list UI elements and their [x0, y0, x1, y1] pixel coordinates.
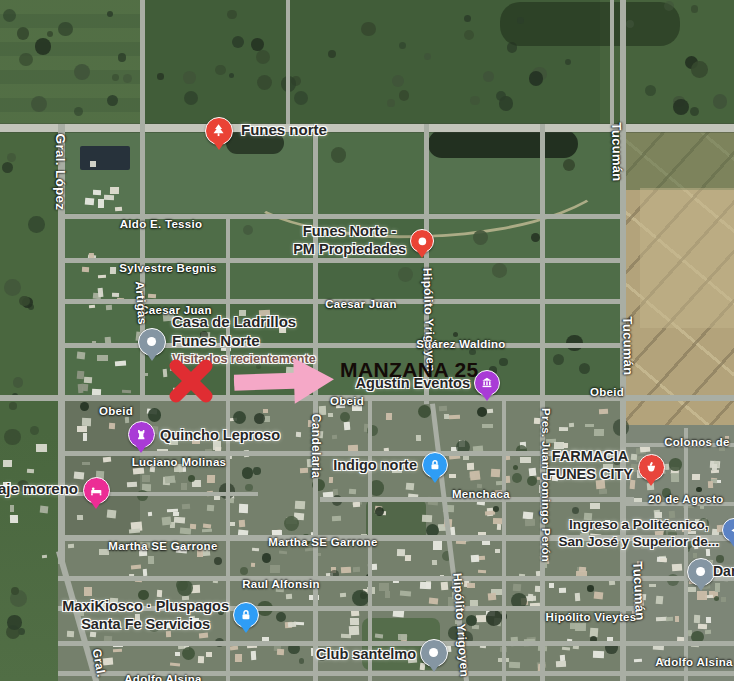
house	[90, 161, 96, 167]
house	[279, 550, 288, 554]
street-label: Martha SE Garrone	[268, 536, 377, 548]
house	[202, 529, 212, 533]
quincho-leproso-pin[interactable]	[128, 421, 155, 448]
club-santelmo-label[interactable]: Club santelmo	[316, 645, 416, 663]
house	[332, 516, 342, 522]
house	[353, 567, 360, 573]
street-label: Tucumán	[609, 122, 625, 181]
house	[708, 481, 714, 488]
house	[84, 587, 92, 596]
street-label: Menchaca	[452, 488, 510, 500]
tree-icon	[211, 123, 226, 138]
house	[277, 649, 284, 655]
tree	[112, 74, 119, 81]
house	[107, 510, 117, 519]
house	[656, 596, 663, 604]
house	[207, 505, 215, 512]
tree	[507, 42, 517, 52]
house	[438, 405, 446, 411]
tree	[9, 402, 17, 410]
house	[76, 352, 85, 360]
house	[328, 413, 333, 417]
padlock-icon	[239, 608, 253, 622]
tree	[517, 17, 524, 24]
house	[590, 503, 600, 509]
tree	[2, 162, 13, 173]
house	[199, 632, 208, 637]
road	[502, 398, 506, 681]
house	[125, 417, 129, 424]
pin-tail	[646, 479, 656, 486]
tree	[177, 580, 193, 596]
casa-de-ladrillos-pin[interactable]	[138, 328, 166, 356]
map-canvas[interactable]: Gral. LópezAldo E. TessioSylvestre Begni…	[0, 0, 734, 681]
tree	[716, 555, 723, 562]
house	[375, 634, 383, 639]
house	[593, 591, 603, 599]
indigo-norte-pin[interactable]	[422, 452, 448, 478]
tree	[360, 592, 367, 599]
indigo-norte-label[interactable]: Indigo norte	[333, 456, 417, 474]
tree	[19, 53, 33, 67]
house	[164, 476, 175, 484]
tree	[713, 94, 728, 109]
house	[93, 190, 101, 196]
tree	[35, 38, 52, 55]
tree	[251, 38, 264, 51]
house	[295, 500, 305, 509]
house	[349, 489, 357, 495]
pin-tail	[429, 665, 439, 672]
funes-norte-pm-propiedades-pin[interactable]	[410, 229, 434, 253]
funes-norte-pm-propiedades-label[interactable]: Funes Norte -PM Propiedades	[293, 222, 406, 258]
farmacia-funes-city-pin[interactable]	[638, 454, 665, 481]
house	[98, 287, 104, 296]
pin-tail	[696, 584, 706, 591]
house	[559, 427, 568, 432]
house	[649, 584, 656, 587]
house	[36, 444, 47, 452]
poi-label-line: Funes Norte -	[293, 222, 406, 240]
house	[288, 622, 297, 628]
house	[522, 511, 533, 518]
ingreso-politecnico-label[interactable]: Ingreso a Politécnico,San José y Superio…	[558, 517, 719, 550]
house	[148, 512, 153, 516]
pin-tail	[136, 446, 146, 453]
pin-tail	[430, 476, 440, 483]
house	[406, 483, 415, 490]
house	[556, 661, 566, 668]
tree	[513, 465, 518, 470]
house	[115, 360, 126, 366]
house	[693, 615, 699, 623]
house	[73, 471, 84, 479]
dot-icon	[693, 564, 708, 579]
poi-label-line: Indigo norte	[333, 456, 417, 474]
tree	[690, 107, 699, 116]
tree	[215, 65, 225, 75]
funes-norte-park-label[interactable]: Funes norte	[241, 121, 327, 140]
house	[491, 469, 500, 478]
tree	[563, 159, 575, 171]
tree	[232, 36, 244, 48]
street-label: Suárez Waldino	[416, 338, 505, 350]
tree	[499, 96, 514, 111]
road	[286, 0, 290, 124]
street-label: Pres. Juan Domingo Perón	[540, 408, 552, 562]
house	[634, 659, 642, 663]
street-label: Caesar Juan	[325, 298, 397, 310]
house	[129, 529, 140, 534]
house	[251, 651, 257, 660]
road	[540, 124, 545, 681]
tree	[107, 11, 113, 17]
tree	[80, 402, 89, 411]
house	[127, 482, 137, 488]
house	[520, 456, 531, 462]
poi-label-line: Quincho Leproso	[160, 426, 280, 444]
house	[251, 563, 256, 568]
pin-tail	[729, 540, 734, 547]
house	[672, 564, 682, 571]
house	[109, 423, 116, 430]
house	[721, 597, 726, 602]
house	[207, 475, 215, 483]
house	[174, 517, 185, 524]
house	[569, 423, 574, 427]
tree	[107, 95, 118, 106]
terrain-patch	[640, 188, 734, 328]
house	[478, 570, 486, 574]
house	[529, 468, 537, 476]
house	[559, 655, 565, 661]
dot-icon	[426, 645, 441, 660]
tree	[361, 22, 376, 37]
poi-label-line: Funes Norte	[172, 332, 316, 351]
house	[715, 583, 720, 592]
house	[482, 424, 493, 428]
x-mark-icon	[166, 356, 216, 406]
house	[444, 414, 449, 419]
house	[206, 652, 212, 657]
pin-tail	[91, 502, 101, 509]
street-label: Raul Alfonsin	[242, 578, 320, 590]
poi-label-line: San José y Superior de...	[558, 534, 719, 551]
house	[666, 617, 674, 621]
terrain-patch	[500, 2, 680, 46]
house	[181, 483, 187, 490]
funes-norte-park-pin[interactable]	[205, 117, 233, 145]
tree	[47, 31, 53, 37]
terrain-patch	[622, 128, 734, 190]
tree	[392, 75, 404, 87]
house	[524, 519, 534, 527]
house	[671, 473, 679, 482]
tree	[229, 73, 234, 78]
house	[350, 618, 359, 625]
house	[167, 509, 178, 513]
street-label: Hipólito Vieytes	[546, 611, 637, 623]
pin-tail	[241, 626, 251, 633]
street-label: Obeid	[99, 405, 133, 417]
tree	[157, 73, 164, 80]
tree	[28, 304, 34, 310]
pin-tail	[147, 354, 157, 361]
house	[147, 293, 155, 298]
house	[340, 592, 346, 596]
tree	[7, 615, 21, 629]
house	[300, 468, 308, 473]
tree	[587, 585, 594, 592]
tree	[245, 484, 252, 491]
pin-tail	[482, 394, 492, 401]
house	[422, 515, 433, 523]
poi-label-line: Santa Fe Servicios	[62, 615, 229, 633]
poi-label-line: Danza...	[713, 563, 734, 580]
house	[76, 371, 84, 380]
house	[10, 514, 18, 522]
street-label: 20 de Agosto	[648, 493, 723, 505]
tree	[123, 74, 132, 83]
house	[203, 523, 211, 528]
house	[593, 651, 604, 659]
house	[83, 433, 87, 441]
tree	[499, 358, 507, 366]
house	[142, 475, 150, 483]
house	[235, 654, 242, 662]
rook-icon	[134, 427, 149, 442]
street-label: Sylvestre Begnis	[119, 262, 217, 274]
maxikiosco-pluspagos-label[interactable]: MaxiKiosco · PluspagosSanta Fe Servicios	[62, 597, 229, 633]
house	[110, 267, 116, 274]
house	[599, 489, 607, 494]
house	[585, 424, 594, 427]
house	[175, 652, 180, 656]
hospedaje-moreno-label[interactable]: daje moreno	[0, 480, 78, 499]
house	[343, 422, 349, 430]
house	[675, 616, 679, 622]
house	[10, 505, 14, 512]
house	[68, 544, 74, 548]
tree	[28, 216, 44, 232]
house	[495, 549, 500, 553]
tree	[691, 61, 708, 78]
house	[82, 267, 89, 273]
road	[610, 0, 614, 124]
poi-label-line: Ingreso a Politécnico,	[558, 517, 719, 534]
house	[449, 414, 460, 419]
house	[348, 626, 358, 635]
tree	[148, 408, 162, 422]
house	[706, 617, 711, 623]
house	[693, 553, 697, 558]
house	[161, 517, 171, 526]
house	[700, 506, 704, 510]
street-label: Colonos de	[664, 436, 730, 448]
tree	[184, 91, 198, 105]
house	[449, 474, 457, 478]
house	[549, 583, 554, 588]
tree	[492, 263, 507, 278]
house	[712, 464, 717, 471]
house	[570, 623, 578, 629]
house	[470, 554, 478, 562]
house	[659, 558, 666, 562]
house	[182, 504, 191, 509]
tree	[565, 59, 571, 65]
terrain-patch	[428, 130, 578, 158]
house	[432, 560, 437, 565]
house	[89, 304, 95, 308]
tree	[486, 610, 502, 626]
house	[559, 587, 566, 592]
event-icon	[480, 376, 494, 390]
house	[77, 515, 84, 521]
house	[239, 504, 248, 513]
house	[84, 377, 93, 383]
house	[433, 541, 442, 550]
danza-pin[interactable]	[687, 558, 715, 586]
tree	[529, 71, 544, 86]
house	[579, 567, 586, 572]
house	[110, 187, 119, 194]
pin-tail	[417, 251, 427, 258]
poi-label-line: Casa de Ladrillos	[172, 313, 316, 332]
house	[112, 293, 119, 297]
street-label: Candelaria	[309, 414, 323, 478]
house	[353, 502, 360, 507]
tree	[253, 467, 260, 474]
tree	[299, 658, 304, 663]
house	[385, 591, 390, 598]
pin-tail	[214, 143, 224, 150]
house	[697, 591, 707, 600]
house	[575, 593, 581, 601]
house	[467, 583, 475, 588]
manzana-25-label: MANZANA 25	[340, 358, 479, 382]
house	[487, 592, 496, 600]
quincho-leproso-label[interactable]: Quincho Leproso	[160, 426, 280, 444]
tree	[183, 71, 196, 84]
tree	[17, 27, 30, 40]
street-label: Tucumán	[620, 316, 636, 375]
street-label: Obeid	[590, 386, 624, 398]
tree	[512, 473, 522, 483]
house	[27, 469, 34, 474]
house	[692, 474, 700, 480]
street-label: Aldo E. Tessio	[120, 218, 203, 230]
house	[84, 198, 94, 206]
house	[214, 496, 220, 500]
poi-label-line: daje moreno	[0, 480, 78, 499]
poi-label-line: FUNES CITY	[547, 465, 633, 483]
house	[156, 590, 162, 597]
poi-label-line: Club santelmo	[316, 645, 416, 663]
poi-label-line: MaxiKiosco · Pluspagos	[62, 597, 229, 615]
house	[286, 594, 292, 599]
house	[419, 582, 430, 590]
tree	[673, 99, 689, 115]
house	[77, 426, 87, 432]
house	[469, 471, 479, 481]
dot-icon	[416, 235, 429, 248]
street-label: Adolfo Alsina	[124, 673, 202, 681]
house	[40, 505, 49, 513]
house	[104, 195, 114, 200]
street-label: Artigas	[133, 281, 150, 325]
pharmacy-icon	[644, 460, 659, 475]
danza-label[interactable]: Danza...	[713, 563, 734, 580]
arrow-icon	[728, 524, 734, 537]
street-label: Gral. López	[53, 134, 68, 211]
tree	[242, 467, 253, 478]
house	[252, 547, 259, 551]
house	[106, 304, 112, 310]
house	[148, 556, 154, 564]
bed-icon	[89, 483, 104, 498]
house	[705, 630, 712, 634]
tree	[399, 90, 410, 101]
house	[440, 582, 448, 591]
house	[416, 435, 421, 442]
tree	[669, 458, 682, 471]
tree	[464, 15, 471, 22]
tree	[331, 147, 346, 162]
house	[398, 634, 407, 640]
farmacia-funes-city-label[interactable]: FARMACIAFUNES CITY	[547, 447, 633, 483]
house	[525, 596, 535, 601]
tree	[118, 53, 126, 61]
house	[497, 524, 502, 530]
house	[467, 463, 474, 470]
street-label: Luciano Molinas	[132, 456, 227, 468]
house	[3, 460, 12, 468]
house	[594, 429, 604, 436]
house	[329, 477, 334, 483]
house	[82, 462, 90, 465]
poi-label-line: FARMACIA	[547, 447, 633, 465]
tree	[464, 30, 474, 40]
club-santelmo-pin[interactable]	[420, 639, 448, 667]
house	[332, 435, 337, 439]
house	[509, 662, 520, 669]
hospedaje-moreno-pin[interactable]	[83, 477, 110, 504]
maxikiosco-pluspagos-pin[interactable]	[233, 602, 259, 628]
house	[133, 467, 144, 473]
tree	[262, 553, 271, 562]
tree	[664, 1, 674, 11]
poi-label-line: Funes norte	[241, 121, 327, 140]
house	[197, 656, 203, 663]
tree	[387, 99, 395, 107]
house	[99, 549, 109, 555]
house	[239, 519, 246, 526]
house	[263, 409, 268, 413]
street-label: Adolfo Alsina	[655, 656, 733, 668]
terrain-patch	[80, 146, 130, 170]
house	[143, 569, 148, 576]
road	[684, 428, 688, 681]
house	[379, 583, 389, 591]
house	[82, 384, 89, 392]
tree	[4, 279, 21, 296]
poi-label-line: PM Propiedades	[293, 240, 406, 258]
pointer-arrow-icon	[233, 354, 337, 408]
house	[296, 432, 301, 437]
house	[599, 409, 608, 414]
house	[513, 583, 522, 590]
tree	[4, 429, 20, 445]
